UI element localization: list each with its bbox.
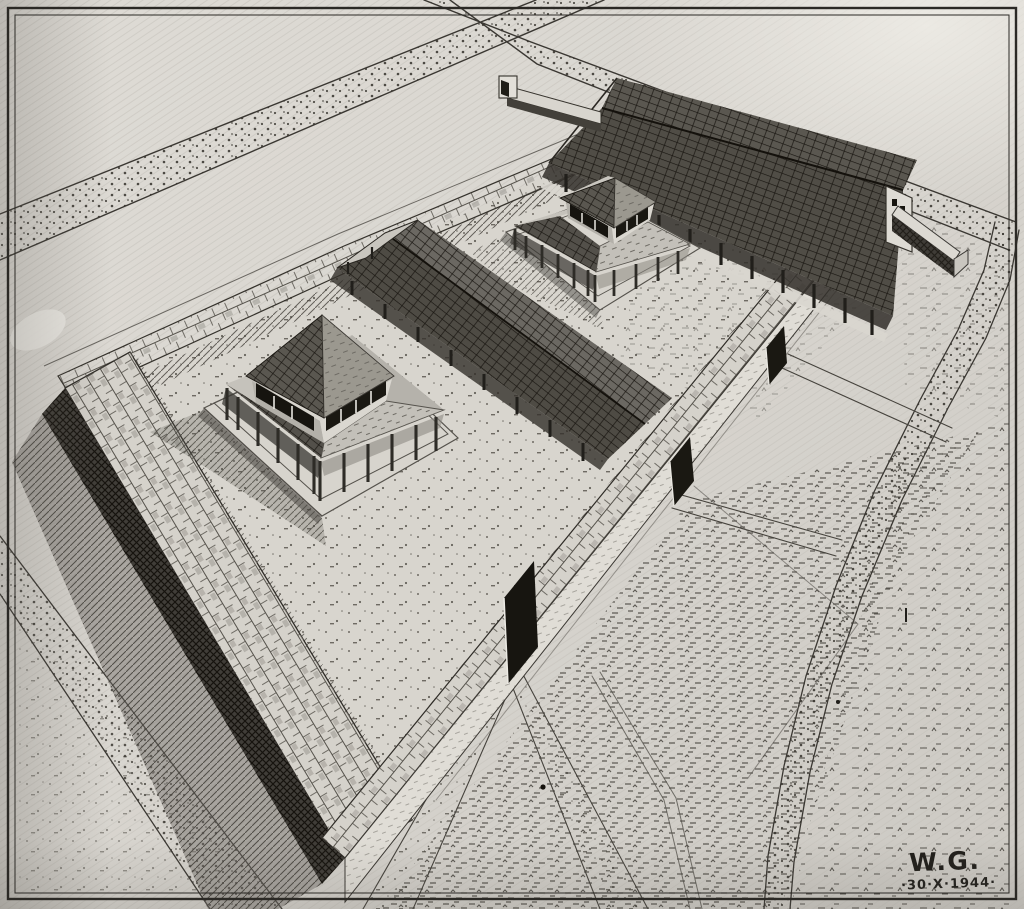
ink-dot bbox=[540, 784, 545, 789]
gable-window bbox=[892, 199, 897, 206]
scanned-drawing: W.G. ·30·X·1944· bbox=[0, 0, 1024, 909]
ink-speck bbox=[836, 700, 840, 704]
vignette-left bbox=[0, 0, 110, 909]
reconstruction-drawing: W.G. ·30·X·1944· bbox=[0, 0, 1024, 909]
crossroads-gate-opening bbox=[501, 80, 509, 97]
